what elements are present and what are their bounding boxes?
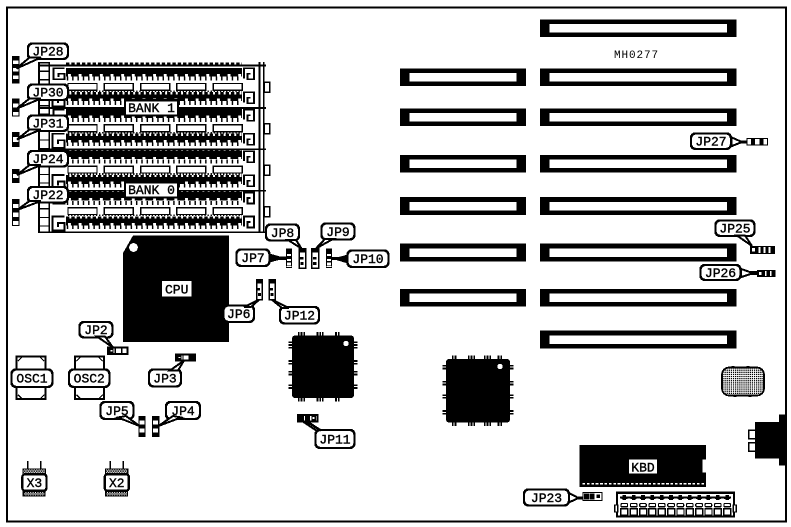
svg-text:OSC1: OSC1	[16, 372, 47, 387]
svg-text:JP25: JP25	[719, 222, 750, 237]
svg-text:JP12: JP12	[284, 309, 315, 324]
svg-text:JP3: JP3	[153, 371, 176, 386]
svg-text:JP27: JP27	[695, 135, 726, 150]
svg-text:JP7: JP7	[241, 251, 264, 266]
svg-text:JP23: JP23	[531, 491, 562, 506]
svg-text:OSC2: OSC2	[74, 372, 105, 387]
svg-text:MH0277: MH0277	[614, 50, 659, 62]
svg-text:JP8: JP8	[271, 226, 294, 241]
svg-text:JP6: JP6	[227, 307, 250, 322]
svg-text:KBD: KBD	[631, 460, 655, 475]
svg-text:JP11: JP11	[319, 432, 350, 447]
svg-text:CPU: CPU	[165, 283, 188, 298]
svg-text:X3: X3	[27, 476, 43, 491]
svg-text:JP9: JP9	[326, 225, 349, 240]
svg-text:X2: X2	[109, 476, 125, 491]
svg-text:JP26: JP26	[705, 266, 736, 281]
svg-text:BANK 0: BANK 0	[128, 183, 175, 198]
svg-text:JP10: JP10	[352, 252, 383, 267]
svg-text:BANK 1: BANK 1	[128, 101, 175, 116]
